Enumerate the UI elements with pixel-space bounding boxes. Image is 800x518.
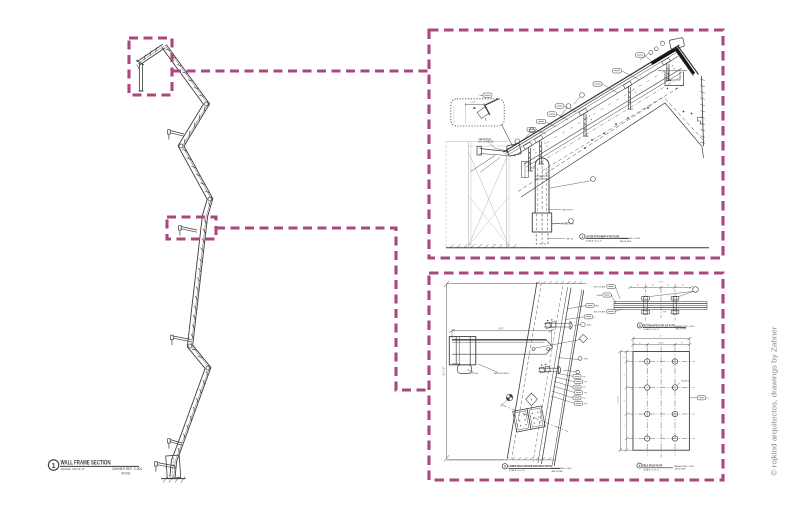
svg-text:GR. 36: GR. 36 xyxy=(566,239,574,241)
svg-text:(2) L4x4: (2) L4x4 xyxy=(470,373,479,375)
svg-text:SHIM: SHIM xyxy=(597,295,602,297)
svg-text:3'-6": 3'-6" xyxy=(499,328,504,331)
svg-text:2": 2" xyxy=(637,285,639,287)
svg-text:ANCHOR BOLT: ANCHOR BOLT xyxy=(494,372,510,375)
svg-text:6'-1 1/2": 6'-1 1/2" xyxy=(443,367,445,376)
svg-text:1: 1 xyxy=(581,235,583,239)
svg-text:ARCH REF.: ARCH REF. xyxy=(676,327,687,330)
svg-text:© rojkind arquitectos, drawing: © rojkind arquitectos, drawings by Zahne… xyxy=(770,326,779,476)
svg-text:3: 3 xyxy=(624,400,626,401)
svg-text:ZAHNER REF: Z-304: ZAHNER REF: Z-304 xyxy=(112,467,142,471)
svg-text:HSS POST: HSS POST xyxy=(562,210,574,212)
svg-text:BOLT PLATE: BOLT PLATE xyxy=(594,311,606,314)
svg-text:SCALE: 3"=1'-0": SCALE: 3"=1'-0" xyxy=(644,328,660,331)
svg-text:1'-0": 1'-0" xyxy=(659,282,663,284)
svg-text:3": 3" xyxy=(667,285,669,287)
svg-text:ZAHNER REF: Z-304: ZAHNER REF: Z-304 xyxy=(551,467,573,470)
svg-text:WALL FRAME SECTION: WALL FRAME SECTION xyxy=(61,460,111,467)
svg-text:2": 2" xyxy=(682,285,684,287)
svg-text:3": 3" xyxy=(652,285,654,287)
svg-text:ZAHNER REF: Z-304: ZAHNER REF: Z-304 xyxy=(674,465,695,468)
svg-text:2: 2 xyxy=(624,357,626,358)
svg-text:ZAHNER REF: Z-304: ZAHNER REF: Z-304 xyxy=(619,237,641,240)
svg-text:(BY OTHERS): (BY OTHERS) xyxy=(479,142,494,144)
svg-text:LOUVER ATTACHMENT IN POST BASE: LOUVER ATTACHMENT IN POST BASE xyxy=(586,234,620,238)
svg-text:3: 3 xyxy=(624,425,626,426)
svg-text:2": 2" xyxy=(681,343,683,345)
svg-text:8: 8 xyxy=(590,339,591,341)
svg-text:ARCH REF.: ARCH REF. xyxy=(675,467,686,470)
svg-text:BC ANCHOR: BC ANCHOR xyxy=(561,223,574,226)
svg-text:2: 2 xyxy=(504,465,506,469)
svg-text:3: 3 xyxy=(639,324,641,328)
svg-text:4: 4 xyxy=(639,464,641,468)
svg-text:SCALE: 3"=1'-0": SCALE: 3"=1'-0" xyxy=(586,239,602,242)
svg-text:1'-4 1/2": 1'-4 1/2" xyxy=(618,396,620,404)
svg-text:ARCH REF.: ARCH REF. xyxy=(552,470,564,473)
svg-text:PL: PL xyxy=(707,398,709,400)
svg-text:A325: A325 xyxy=(587,324,591,327)
svg-text:FIELD BOLT: FIELD BOLT xyxy=(479,139,493,141)
svg-text:SCALE: 3"=1'-0": SCALE: 3"=1'-0" xyxy=(509,469,525,472)
svg-text:SECTION IN FIELD SPLICE PLATE: SECTION IN FIELD SPLICE PLATE xyxy=(643,323,675,327)
svg-text:SCALE: 1/4"=1'-0": SCALE: 1/4"=1'-0" xyxy=(61,467,85,471)
svg-text:3 1/2": 3 1/2" xyxy=(658,343,663,345)
svg-text:7": 7" xyxy=(660,336,662,338)
svg-text:ARCH REF.: ARCH REF. xyxy=(121,472,130,476)
svg-text:LOWER FIELD ANCHOR AND FIELD S: LOWER FIELD ANCHOR AND FIELD SPLICE xyxy=(509,464,553,468)
svg-text:2": 2" xyxy=(639,343,641,345)
svg-text:FIELD SPLICE PLATE: FIELD SPLICE PLATE xyxy=(643,464,663,468)
svg-text:1: 1 xyxy=(52,463,56,470)
svg-text:ZAHNER REF: Z-304: ZAHNER REF: Z-304 xyxy=(675,325,696,328)
svg-text:HSS 6x6: HSS 6x6 xyxy=(452,363,461,365)
svg-text:(8) Ø9/16: (8) Ø9/16 xyxy=(682,381,691,383)
svg-text:ARCH REF.: ARCH REF. xyxy=(620,240,632,243)
svg-text:PL: PL xyxy=(594,317,596,319)
svg-text:3: 3 xyxy=(624,374,626,375)
svg-text:1 1/2": 1 1/2" xyxy=(470,102,475,104)
svg-text:BOLT PLATE: BOLT PLATE xyxy=(594,286,606,289)
svg-text:SCALE: 3"=1'-0": SCALE: 3"=1'-0" xyxy=(643,468,659,471)
